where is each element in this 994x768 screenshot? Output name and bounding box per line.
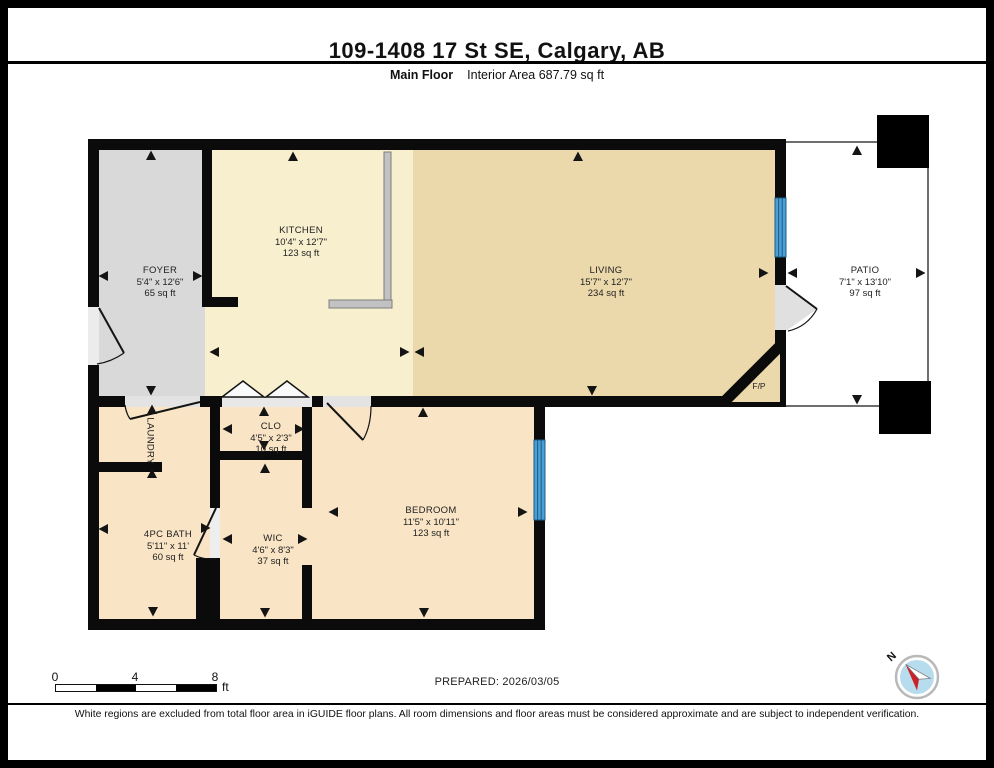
footer-divider [8,703,986,705]
room-label-foyer: FOYER 5'4" x 12'6" 65 sq ft [137,265,184,300]
room-label-bath: 4PC BATH 5'11" x 11' 60 sq ft [144,529,192,564]
wall-left [88,139,99,630]
fireplace-label: F/P [752,381,766,391]
wall-foyer-kitchen [202,150,212,307]
wall-mid-2 [200,396,222,407]
wall-bedroom-right-2 [534,520,545,619]
compass-north-label: N [885,650,899,664]
disclaimer-text: White regions are excluded from total fl… [8,709,986,720]
bedroom-window [534,440,545,520]
bedroom-wing-floor [91,400,541,625]
dim-arrow-left [788,268,798,278]
wic-opening [302,508,312,565]
wall-bath-wic-2 [196,558,220,620]
wall-foyer-stub [202,297,238,307]
wall-right-2 [775,257,786,285]
patio-post-top [877,115,929,168]
room-label-laundry: LAUNDRY [145,417,156,464]
wall-wic-bedroom-2 [302,565,312,619]
floorplan-drawing: F/P [8,8,986,760]
dim-arrow-up [852,146,862,156]
wall-clo-left [210,407,220,451]
wall-bath-wic-1 [210,460,220,508]
room-label-clo: CLO 4'5" x 2'3" 10 sq ft [250,421,292,456]
patio-post-bottom [879,381,931,434]
wall-top [88,139,785,150]
counter-vertical [384,152,391,303]
room-label-living: LIVING 15'7" x 12'7" 234 sq ft [580,265,632,300]
entry-opening [88,307,99,365]
wall-mid-3 [312,396,323,407]
wall-right-1 [775,139,786,198]
prepared-date-label: PREPARED: 2026/03/05 [8,676,986,688]
patio-door-shade [786,287,817,331]
patio-opening [775,285,786,330]
room-label-kitchen: KITCHEN 10'4" x 12'7" 123 sq ft [275,225,327,260]
dim-arrow-down [852,395,862,405]
living-window [775,198,786,257]
room-label-bedroom: BEDROOM 11'5" x 10'11" 123 sq ft [403,505,459,540]
room-label-patio: PATIO 7'1" x 13'10" 97 sq ft [839,265,891,300]
dim-arrow-right [916,268,926,278]
compass-icon: N [885,650,938,698]
counter-horizontal [329,300,392,308]
floorplan-page: 109-1408 17 St SE, Calgary, AB Main Floo… [0,0,994,768]
room-label-wic: WIC 4'6" x 8'3" 37 sq ft [252,533,294,568]
wall-mid-1 [88,396,125,407]
wall-bedroom-right-1 [534,407,545,440]
wall-bottom [88,619,545,630]
wall-wic-bedroom-1 [302,407,312,508]
